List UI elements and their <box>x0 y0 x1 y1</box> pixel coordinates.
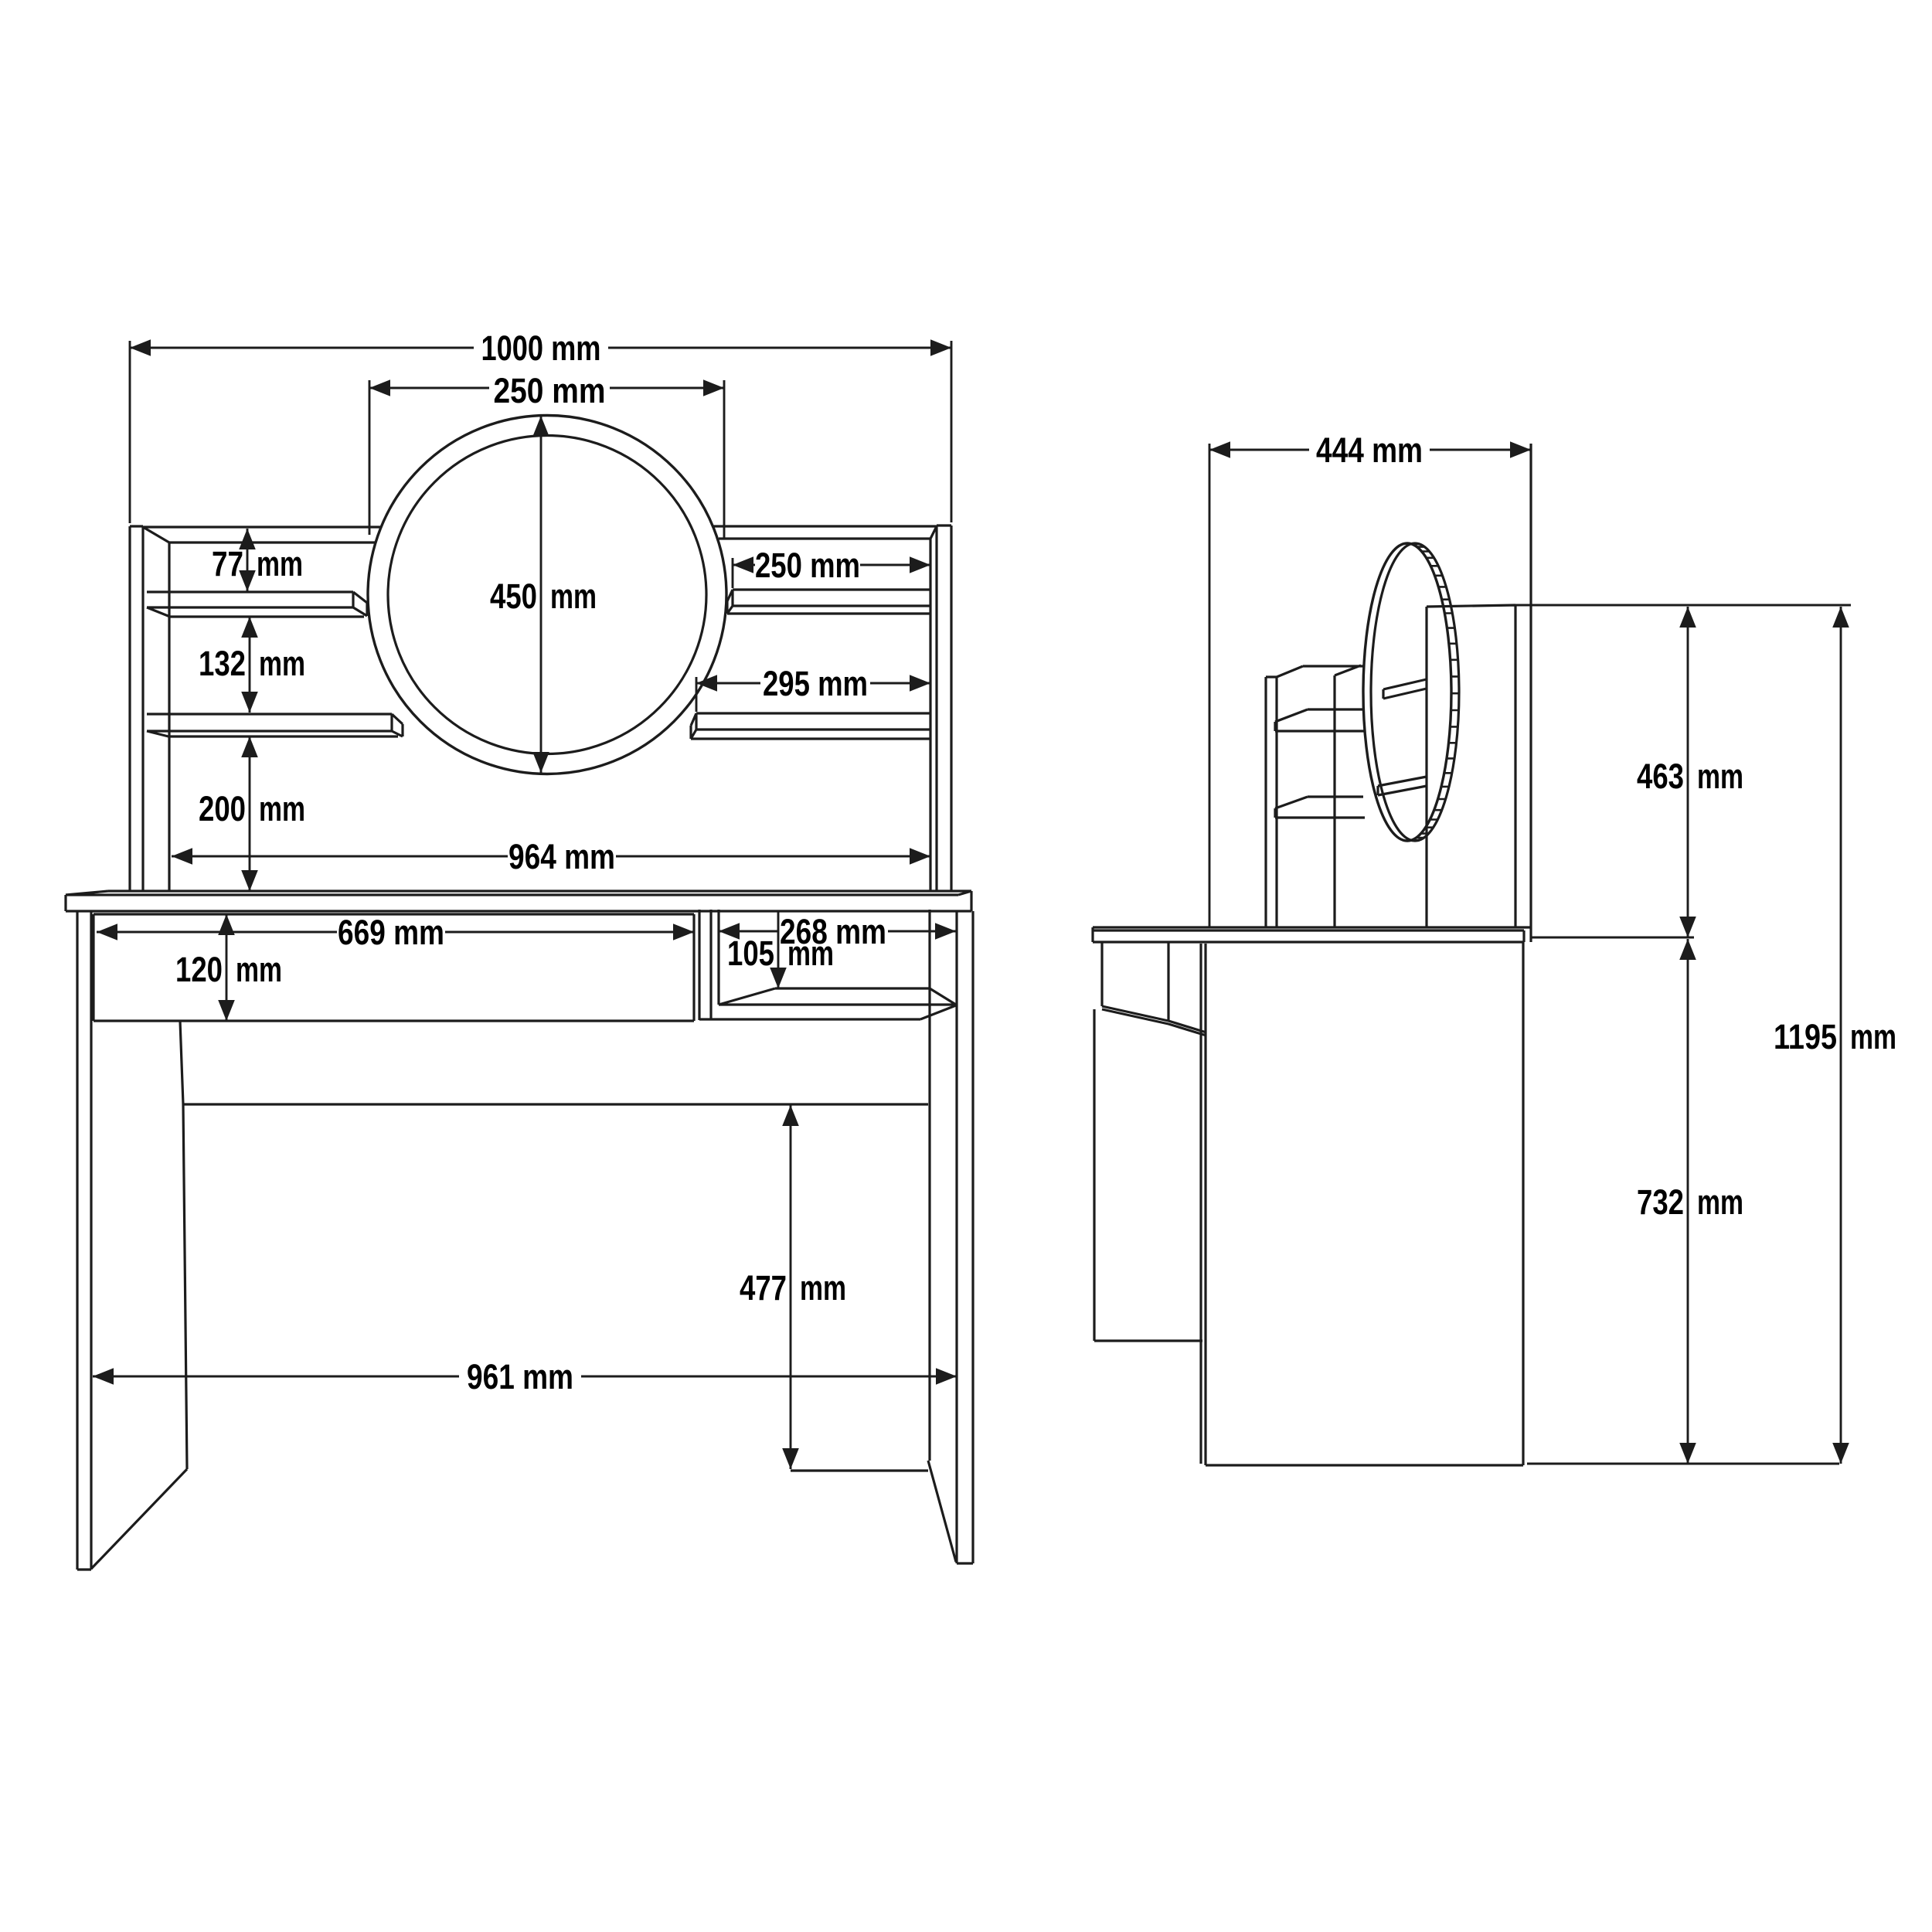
svg-text:477: 477 <box>740 1268 787 1308</box>
svg-text:mm: mm <box>550 577 597 616</box>
svg-text:mm: mm <box>257 544 303 583</box>
svg-text:250 mm: 250 mm <box>755 546 860 585</box>
svg-text:mm: mm <box>1850 1017 1896 1056</box>
svg-text:mm: mm <box>259 789 305 828</box>
svg-text:mm: mm <box>787 934 834 973</box>
svg-text:mm: mm <box>236 950 282 989</box>
svg-text:964 mm: 964 mm <box>509 837 615 876</box>
svg-text:mm: mm <box>1697 757 1743 796</box>
svg-text:669 mm: 669 mm <box>338 913 444 952</box>
svg-text:444 mm: 444 mm <box>1316 430 1423 470</box>
svg-text:450: 450 <box>490 577 537 616</box>
svg-text:732: 732 <box>1637 1182 1684 1222</box>
svg-text:mm: mm <box>259 644 305 683</box>
svg-text:961 mm: 961 mm <box>467 1357 573 1396</box>
svg-text:1000 mm: 1000 mm <box>481 328 601 368</box>
svg-text:mm: mm <box>1697 1182 1743 1222</box>
svg-text:463: 463 <box>1637 757 1684 796</box>
svg-text:200: 200 <box>199 789 246 828</box>
svg-text:120: 120 <box>175 950 223 989</box>
svg-text:132: 132 <box>199 644 246 683</box>
svg-text:250 mm: 250 mm <box>494 371 606 410</box>
svg-text:mm: mm <box>800 1268 846 1308</box>
svg-text:105: 105 <box>727 934 774 973</box>
svg-text:77: 77 <box>212 544 243 583</box>
svg-text:295 mm: 295 mm <box>763 664 868 703</box>
svg-text:1195: 1195 <box>1774 1017 1837 1056</box>
